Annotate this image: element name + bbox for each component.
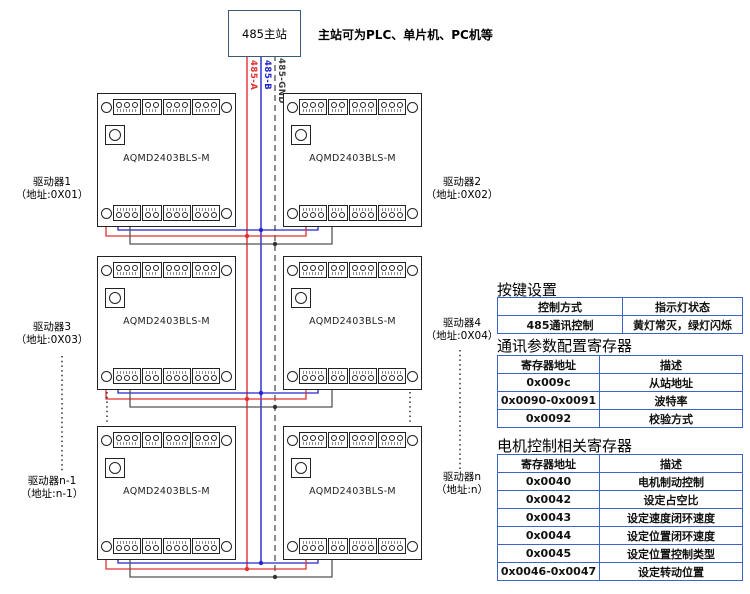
terminal (211, 102, 217, 108)
button-icon (295, 129, 307, 141)
terminal (352, 435, 358, 441)
terminal (124, 102, 130, 108)
junction-dot (273, 242, 277, 246)
board-model-label: AQMD2403BLS-M (98, 486, 235, 497)
terminal (145, 545, 151, 551)
terminal-row (352, 265, 374, 271)
mounting-hole (287, 102, 298, 113)
board-model-label: AQMD2403BLS-M (98, 153, 235, 164)
junction-dot (245, 397, 249, 401)
board-model-label: AQMD2403BLS-M (284, 486, 421, 497)
terminal (339, 375, 345, 381)
terminal (182, 545, 188, 551)
terminal-strip-bottom (101, 368, 232, 384)
terminal-group (349, 538, 377, 554)
terminal (174, 212, 180, 218)
terminal-strip-top (101, 432, 232, 448)
terminal-row (302, 435, 324, 441)
terminal (116, 102, 122, 108)
terminal (397, 435, 403, 441)
terminal-group (113, 99, 141, 115)
mounting-hole (407, 208, 418, 219)
terminal-group (349, 205, 377, 221)
terminal-row (352, 435, 374, 441)
driver-board: AQMD2403BLS-M (97, 426, 236, 560)
terminal-group (378, 205, 406, 221)
terminal (182, 265, 188, 271)
terminal (352, 102, 358, 108)
terminal (166, 375, 172, 381)
terminal-strip-bottom (287, 205, 418, 221)
terminal-row (116, 375, 138, 381)
mode-button (291, 458, 311, 478)
terminal (331, 212, 337, 218)
terminal-row (302, 545, 324, 551)
terminal-labels (303, 272, 323, 275)
terminal-labels (382, 109, 402, 112)
terminal-labels (303, 208, 323, 211)
terminal-row (302, 265, 324, 271)
terminal-strip-bottom (287, 538, 418, 554)
terminal-row (145, 265, 159, 271)
terminal-group (349, 432, 377, 448)
terminal (310, 545, 316, 551)
terminal (153, 435, 159, 441)
terminal (368, 212, 374, 218)
terminal (397, 375, 403, 381)
terminal-labels (303, 442, 323, 445)
terminal-labels (303, 109, 323, 112)
driver-board: AQMD2403BLS-M (283, 426, 422, 560)
terminal-group (113, 432, 141, 448)
terminal-labels (353, 109, 373, 112)
terminal-row (195, 212, 217, 218)
terminal (389, 265, 395, 271)
terminal (318, 375, 324, 381)
terminal (203, 375, 209, 381)
terminal-labels (353, 442, 373, 445)
terminal (153, 212, 159, 218)
terminal-labels (196, 541, 216, 544)
master-station-box: 485主站 (228, 10, 301, 57)
terminal-group (113, 538, 141, 554)
terminal (124, 545, 130, 551)
terminal (153, 265, 159, 271)
terminal (397, 102, 403, 108)
row1-gnd-wire (130, 225, 332, 244)
terminal (310, 435, 316, 441)
terminal-labels (167, 208, 187, 211)
terminal (203, 102, 209, 108)
mode-button (105, 458, 125, 478)
terminal-labels (332, 541, 344, 544)
terminal (381, 435, 387, 441)
terminal-row (145, 375, 159, 381)
terminal-labels (167, 371, 187, 374)
terminal (132, 375, 138, 381)
terminal-group (192, 432, 220, 448)
junction-dot (245, 567, 249, 571)
terminal-group (299, 99, 327, 115)
junction-dot (259, 391, 263, 395)
terminal-group (163, 432, 191, 448)
terminal (360, 265, 366, 271)
terminal (302, 102, 308, 108)
terminal-group (113, 368, 141, 384)
terminal (368, 375, 374, 381)
mounting-hole (101, 541, 112, 552)
terminal-row (116, 102, 138, 108)
terminal (318, 102, 324, 108)
terminal-labels (303, 371, 323, 374)
terminal-group (349, 368, 377, 384)
terminal-labels (353, 272, 373, 275)
terminal-group (113, 262, 141, 278)
terminal (339, 435, 345, 441)
terminal (166, 102, 172, 108)
terminal-labels (146, 541, 158, 544)
terminal (211, 265, 217, 271)
terminal-strip-top (287, 262, 418, 278)
terminal-row (166, 545, 188, 551)
mounting-hole (407, 265, 418, 276)
terminal-row (195, 102, 217, 108)
terminal (124, 435, 130, 441)
terminal-row (302, 102, 324, 108)
terminal-row (195, 545, 217, 551)
terminal (381, 265, 387, 271)
terminal (195, 102, 201, 108)
terminal (310, 102, 316, 108)
terminal (166, 435, 172, 441)
terminal-row (166, 375, 188, 381)
terminal-row (381, 102, 403, 108)
terminal-labels (146, 109, 158, 112)
terminal (310, 265, 316, 271)
terminal-row (381, 212, 403, 218)
terminal-strip-top (101, 262, 232, 278)
mode-button (105, 125, 125, 145)
terminal (174, 102, 180, 108)
terminal-row (116, 435, 138, 441)
terminal-row (352, 545, 374, 551)
terminal (368, 545, 374, 551)
terminal (132, 435, 138, 441)
mounting-hole (221, 265, 232, 276)
terminal (166, 212, 172, 218)
mounting-hole (221, 208, 232, 219)
terminal (310, 375, 316, 381)
terminal (352, 545, 358, 551)
driver-board: AQMD2403BLS-M (283, 93, 422, 227)
terminal (132, 545, 138, 551)
mounting-hole (221, 371, 232, 382)
terminal (116, 545, 122, 551)
terminal-group (328, 262, 348, 278)
junction-dot (259, 561, 263, 565)
terminal (211, 212, 217, 218)
terminal (203, 212, 209, 218)
terminal (116, 265, 122, 271)
terminal (331, 545, 337, 551)
terminal-row (166, 102, 188, 108)
terminal-group (378, 432, 406, 448)
terminal (195, 212, 201, 218)
terminal-labels (303, 541, 323, 544)
terminal (331, 102, 337, 108)
terminal (174, 435, 180, 441)
terminal-group (328, 205, 348, 221)
terminal-group (299, 205, 327, 221)
terminal-labels (146, 272, 158, 275)
mounting-hole (407, 371, 418, 382)
terminal (145, 265, 151, 271)
terminal-group (328, 368, 348, 384)
terminal (132, 265, 138, 271)
terminal-group (378, 262, 406, 278)
terminal-labels (117, 272, 137, 275)
board-model-label: AQMD2403BLS-M (284, 153, 421, 164)
terminal-row (331, 435, 345, 441)
mounting-hole (287, 208, 298, 219)
terminal-labels (196, 272, 216, 275)
row2-gnd-wire (130, 388, 332, 407)
terminal-labels (167, 541, 187, 544)
terminal (331, 265, 337, 271)
terminal (368, 265, 374, 271)
terminal (116, 212, 122, 218)
mounting-hole (221, 541, 232, 552)
terminal (124, 265, 130, 271)
terminal-row (302, 375, 324, 381)
driver-board: AQMD2403BLS-M (97, 93, 236, 227)
driver-board: AQMD2403BLS-M (283, 256, 422, 390)
terminal (195, 265, 201, 271)
terminal (182, 375, 188, 381)
terminal (389, 545, 395, 551)
terminal-row (195, 265, 217, 271)
terminal (174, 545, 180, 551)
terminal-group (192, 99, 220, 115)
terminal (318, 545, 324, 551)
terminal-labels (332, 208, 344, 211)
terminal (360, 212, 366, 218)
terminal-strip-bottom (101, 205, 232, 221)
mode-button (291, 288, 311, 308)
terminal-group (142, 368, 162, 384)
terminal-group (113, 205, 141, 221)
terminal-labels (117, 109, 137, 112)
mounting-hole (287, 371, 298, 382)
terminal (389, 375, 395, 381)
terminal (153, 545, 159, 551)
terminal (116, 375, 122, 381)
terminal-row (381, 545, 403, 551)
terminal (310, 212, 316, 218)
mounting-hole (287, 265, 298, 276)
terminal (124, 212, 130, 218)
mounting-hole (407, 102, 418, 113)
terminal-labels (146, 371, 158, 374)
terminal (302, 375, 308, 381)
terminal-labels (332, 442, 344, 445)
terminal-group (328, 432, 348, 448)
terminal (182, 102, 188, 108)
terminal (302, 545, 308, 551)
terminal (360, 435, 366, 441)
terminal (174, 265, 180, 271)
terminal (145, 102, 151, 108)
terminal-group (142, 538, 162, 554)
mode-button (291, 125, 311, 145)
terminal-labels (332, 109, 344, 112)
terminal (302, 435, 308, 441)
terminal-group (192, 368, 220, 384)
terminal-labels (117, 541, 137, 544)
mounting-hole (221, 102, 232, 113)
terminal-labels (146, 208, 158, 211)
terminal-group (142, 262, 162, 278)
terminal-labels (117, 371, 137, 374)
terminal (397, 265, 403, 271)
terminal (397, 212, 403, 218)
junction-dot (259, 228, 263, 232)
terminal (174, 375, 180, 381)
terminal-row (145, 212, 159, 218)
terminal-labels (353, 208, 373, 211)
terminal (389, 212, 395, 218)
terminal (302, 212, 308, 218)
terminal-group (142, 99, 162, 115)
driver-board: AQMD2403BLS-M (97, 256, 236, 390)
terminal (166, 265, 172, 271)
terminal-labels (382, 208, 402, 211)
terminal (352, 265, 358, 271)
button-icon (109, 292, 121, 304)
terminal-group (299, 432, 327, 448)
terminal-row (116, 212, 138, 218)
terminal-group (192, 262, 220, 278)
terminal-row (381, 375, 403, 381)
terminal-group (349, 262, 377, 278)
terminal (339, 102, 345, 108)
master-station-label: 485主站 (242, 26, 287, 42)
terminal-row (331, 545, 345, 551)
terminal-row (331, 375, 345, 381)
terminal-row (116, 265, 138, 271)
terminal-labels (167, 442, 187, 445)
terminal-group (378, 368, 406, 384)
terminal-group (192, 538, 220, 554)
terminal (132, 102, 138, 108)
terminal (153, 102, 159, 108)
terminal (331, 375, 337, 381)
terminal (203, 435, 209, 441)
mounting-hole (101, 371, 112, 382)
terminal-group (192, 205, 220, 221)
terminal-labels (353, 541, 373, 544)
terminal (368, 435, 374, 441)
terminal-group (299, 368, 327, 384)
terminal-row (381, 265, 403, 271)
terminal-row (352, 212, 374, 218)
terminal-group (163, 262, 191, 278)
terminal-row (166, 212, 188, 218)
terminal (124, 375, 130, 381)
mounting-hole (101, 102, 112, 113)
terminal-labels (167, 109, 187, 112)
terminal (360, 102, 366, 108)
terminal-row (166, 265, 188, 271)
terminal (145, 212, 151, 218)
terminal (116, 435, 122, 441)
mounting-hole (221, 435, 232, 446)
terminal-row (116, 545, 138, 551)
terminal-group (378, 99, 406, 115)
terminal-labels (332, 371, 344, 374)
terminal (153, 375, 159, 381)
terminal-group (328, 99, 348, 115)
terminal-labels (167, 272, 187, 275)
terminal-labels (382, 541, 402, 544)
terminal (381, 102, 387, 108)
terminal (339, 265, 345, 271)
terminal (203, 265, 209, 271)
terminal (195, 545, 201, 551)
terminal (381, 212, 387, 218)
terminal-group (299, 538, 327, 554)
terminal-row (195, 375, 217, 381)
terminal (211, 375, 217, 381)
terminal-labels (196, 442, 216, 445)
terminal-group (349, 99, 377, 115)
junction-dot (273, 575, 277, 579)
terminal-group (163, 538, 191, 554)
terminal-labels (353, 371, 373, 374)
terminal-group (142, 432, 162, 448)
mounting-hole (287, 541, 298, 552)
row3-gnd-wire (130, 558, 332, 577)
terminal-labels (382, 371, 402, 374)
button-icon (295, 462, 307, 474)
terminal-row (145, 102, 159, 108)
terminal-row (331, 212, 345, 218)
board-model-label: AQMD2403BLS-M (284, 316, 421, 327)
terminal-labels (332, 272, 344, 275)
terminal-labels (117, 208, 137, 211)
terminal-group (299, 262, 327, 278)
terminal-group (163, 99, 191, 115)
button-icon (109, 129, 121, 141)
terminal (203, 545, 209, 551)
terminal-group (378, 538, 406, 554)
terminal (145, 375, 151, 381)
button-icon (109, 462, 121, 474)
terminal (381, 375, 387, 381)
terminal-strip-top (287, 99, 418, 115)
terminal-row (352, 375, 374, 381)
junction-dot (273, 405, 277, 409)
terminal (182, 435, 188, 441)
terminal (145, 435, 151, 441)
terminal-labels (196, 371, 216, 374)
terminal-labels (117, 442, 137, 445)
terminal-row (195, 435, 217, 441)
terminal (352, 375, 358, 381)
mounting-hole (287, 435, 298, 446)
terminal-labels (382, 442, 402, 445)
terminal (302, 265, 308, 271)
